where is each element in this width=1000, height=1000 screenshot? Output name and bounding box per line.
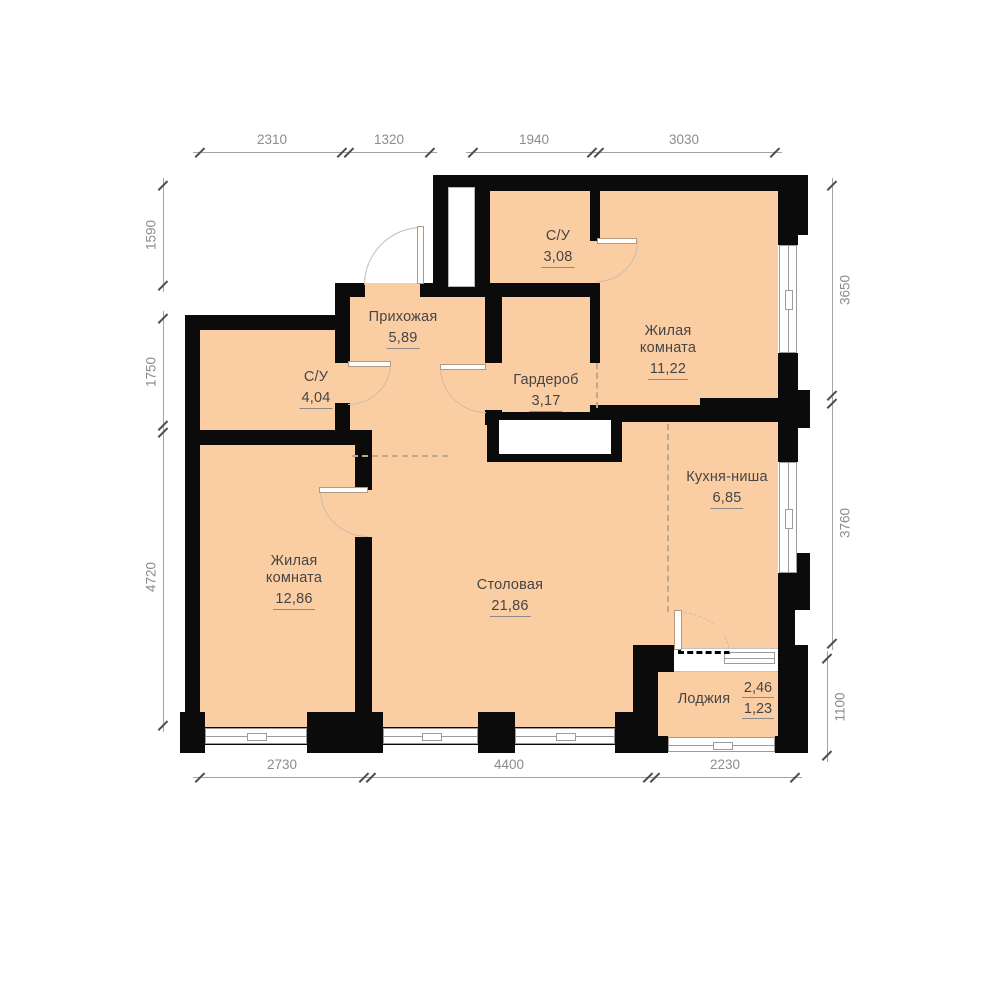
- room-label-bathroom-left: С/У 4,04: [299, 369, 332, 409]
- dashed-kitchen-boundary: [667, 424, 669, 612]
- dim-top-4: 3030: [669, 132, 699, 147]
- wall-bathroom-left-bottom: [200, 430, 372, 445]
- dim-line-left-1: [163, 178, 164, 292]
- dim-line-bottom-1: [193, 777, 655, 778]
- wall-living-top-bottom-step: [700, 398, 780, 407]
- room-label-wardrobe: Гардероб 3,17: [513, 372, 578, 412]
- window-living-left: [205, 728, 307, 744]
- dim-line-right-1: [832, 178, 833, 402]
- dim-line-bottom-2: [648, 777, 802, 778]
- room-label-living-top: Жилая комната 11,22: [622, 323, 714, 380]
- floor-plan: С/У 3,08 Прихожая 5,89 С/У 4,04 Гардероб…: [0, 0, 1000, 1000]
- exterior-area: [183, 168, 345, 315]
- wall-loggia-south-left: [633, 736, 668, 753]
- wall-wardrobe-east: [590, 283, 600, 363]
- room-label-loggia-name: Лоджия: [678, 691, 731, 708]
- wall-wardrobe-west-upper: [485, 297, 502, 363]
- dim-line-top-2: [466, 152, 782, 153]
- room-name: Жилая комната: [622, 323, 714, 357]
- wall-right-step-1: [793, 390, 810, 428]
- room-area: 21,86: [489, 598, 530, 617]
- wall-loggia-north-pier: [633, 645, 674, 672]
- room-name: Жилая комната: [248, 553, 340, 587]
- dim-bottom-1: 2730: [267, 757, 297, 772]
- bathroom-top-door-leaf: [597, 238, 637, 244]
- room-area: 3,17: [529, 393, 562, 412]
- dim-line-right-3: [827, 651, 828, 762]
- living-left-door-leaf: [319, 487, 368, 493]
- dim-line-top-1: [193, 152, 437, 153]
- dashed-wardrobe-boundary: [596, 363, 598, 408]
- wall-living-top-bottom: [590, 405, 780, 422]
- dim-left-3: 4720: [144, 562, 159, 592]
- dim-right-3: 1100: [833, 692, 848, 721]
- room-label-dining: Столовая 21,86: [477, 577, 543, 617]
- room-label-living-left: Жилая комната 12,86: [248, 553, 340, 610]
- dim-line-left-2: [163, 311, 164, 732]
- dim-right-2: 3760: [838, 508, 853, 538]
- wall-bathroom-left-east-lower: [335, 403, 350, 432]
- wall-right-1: [778, 190, 798, 245]
- room-area: 11,22: [648, 361, 688, 380]
- room-name: С/У: [541, 228, 574, 245]
- wardrobe-door-leaf: [440, 364, 486, 370]
- pier-bottom-1: [180, 712, 205, 753]
- dim-bottom-2: 4400: [494, 757, 524, 772]
- bathroom-left-door-leaf: [348, 361, 391, 367]
- room-label-kitchen: Кухня-ниша 6,85: [686, 469, 767, 509]
- wall-loggia-south-right: [775, 736, 808, 753]
- wall-bathroom-left-east-upper: [335, 283, 350, 363]
- wall-living-left-east-upper: [355, 430, 372, 490]
- room-name: Лоджия: [678, 691, 731, 708]
- dashed-hallway-boundary: [352, 455, 448, 457]
- window-kitchen: [779, 462, 797, 573]
- room-name: Гардероб: [513, 372, 578, 389]
- room-area: 3,08: [541, 249, 574, 268]
- wall-entry-niche-west: [433, 175, 448, 285]
- wall-left-outer: [185, 315, 200, 753]
- window-living-top: [779, 245, 797, 353]
- dim-top-2: 1320: [374, 132, 404, 147]
- room-name: Кухня-ниша: [686, 469, 767, 486]
- room-name: С/У: [299, 369, 332, 386]
- room-area: 2,46: [742, 680, 774, 698]
- dim-top-3: 1940: [519, 132, 549, 147]
- room-label-hallway: Прихожая 5,89: [369, 309, 438, 349]
- room-name: Столовая: [477, 577, 543, 594]
- dim-right-1: 3650: [838, 275, 853, 305]
- window-loggia-south: [668, 737, 775, 752]
- room-area-secondary: 1,23: [742, 701, 774, 719]
- room-name: Прихожая: [369, 309, 438, 326]
- dim-bottom-3: 2230: [710, 757, 740, 772]
- wall-entry-right: [420, 283, 600, 297]
- entrance-door-leaf: [417, 226, 424, 284]
- dim-left-2: 1750: [144, 357, 159, 387]
- room-label-bathroom-top: С/У 3,08: [541, 228, 574, 268]
- room-area: 12,86: [273, 591, 314, 610]
- entry-niche: [448, 187, 475, 287]
- window-loggia-north: [724, 652, 775, 664]
- wall-entry-niche-east: [473, 175, 490, 285]
- room-area: 6,85: [710, 490, 743, 509]
- pier-bottom-2: [307, 712, 383, 753]
- shaft-void: [499, 420, 611, 454]
- wall-bathroom-top-east: [590, 190, 600, 241]
- room-area: 5,89: [386, 330, 419, 349]
- dim-top-1: 2310: [257, 132, 287, 147]
- dim-left-1: 1590: [144, 220, 159, 250]
- wall-right-4: [778, 610, 795, 645]
- window-dining-2: [515, 728, 615, 744]
- wall-bathroom-left-top: [185, 315, 348, 330]
- window-dining-1: [383, 728, 478, 744]
- dim-line-right-2: [832, 396, 833, 650]
- room-label-loggia-areas: 2,46 1,23: [737, 680, 779, 722]
- room-area: 4,04: [299, 390, 332, 409]
- loggia-door-leaf: [674, 610, 682, 650]
- pier-bottom-3: [478, 712, 515, 753]
